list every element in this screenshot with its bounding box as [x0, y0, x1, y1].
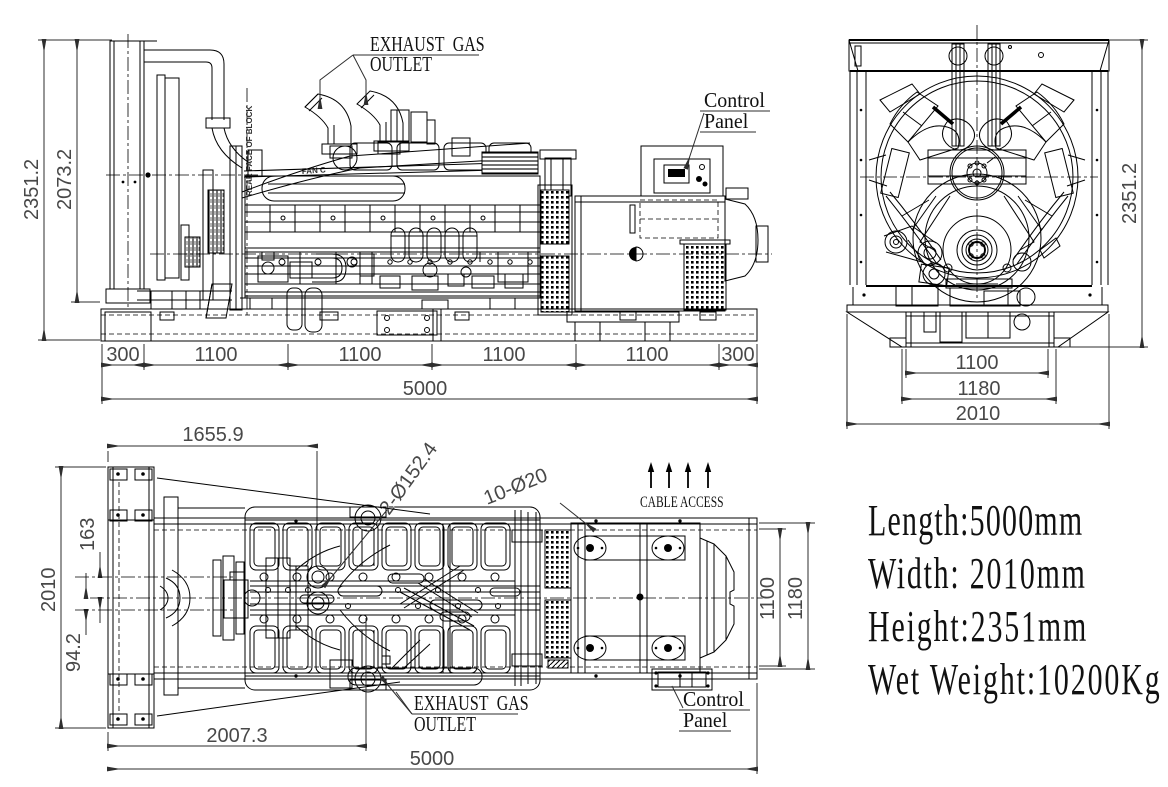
svg-text:1100: 1100 — [757, 577, 779, 620]
svg-text:OUTLET: OUTLET — [370, 53, 433, 77]
svg-text:1100: 1100 — [482, 344, 525, 366]
svg-text:2010: 2010 — [38, 568, 60, 613]
svg-text:94.2: 94.2 — [63, 633, 85, 672]
svg-text:2073.2: 2073.2 — [54, 149, 76, 210]
svg-text:1180: 1180 — [785, 577, 807, 620]
svg-text:1100: 1100 — [194, 344, 237, 366]
svg-text:Panel: Panel — [704, 111, 749, 134]
svg-text:Length:5000mm: Length:5000mm — [868, 496, 1082, 545]
svg-text:Control: Control — [704, 90, 765, 113]
svg-text:2010: 2010 — [956, 403, 1001, 425]
svg-text:163: 163 — [77, 518, 99, 551]
svg-text:1100: 1100 — [955, 352, 998, 374]
svg-text:5000: 5000 — [410, 748, 455, 770]
svg-text:2007.3: 2007.3 — [206, 725, 267, 747]
svg-text:300: 300 — [721, 344, 754, 366]
svg-text:CABLE ACCESS: CABLE ACCESS — [640, 494, 724, 511]
svg-text:2351.2: 2351.2 — [21, 159, 43, 220]
svg-text:OUTLET: OUTLET — [414, 713, 477, 737]
svg-text:Panel: Panel — [683, 710, 728, 733]
svg-text:1100: 1100 — [625, 344, 668, 366]
svg-text:Width: 2010mm: Width: 2010mm — [868, 549, 1085, 598]
svg-text:1180: 1180 — [957, 378, 1000, 400]
svg-text:REAR FACE OF BLOCK: REAR FACE OF BLOCK — [245, 106, 254, 196]
svg-text:300: 300 — [106, 344, 139, 366]
svg-text:2351.2: 2351.2 — [1119, 163, 1141, 224]
svg-text:Wet Weight:10200Kg: Wet Weight:10200Kg — [868, 655, 1160, 704]
svg-text:1655.9: 1655.9 — [182, 424, 243, 446]
svg-text:Control: Control — [683, 689, 744, 712]
svg-text:Height:2351mm: Height:2351mm — [868, 602, 1086, 651]
svg-text:5000: 5000 — [403, 378, 448, 400]
svg-text:1100: 1100 — [338, 344, 381, 366]
